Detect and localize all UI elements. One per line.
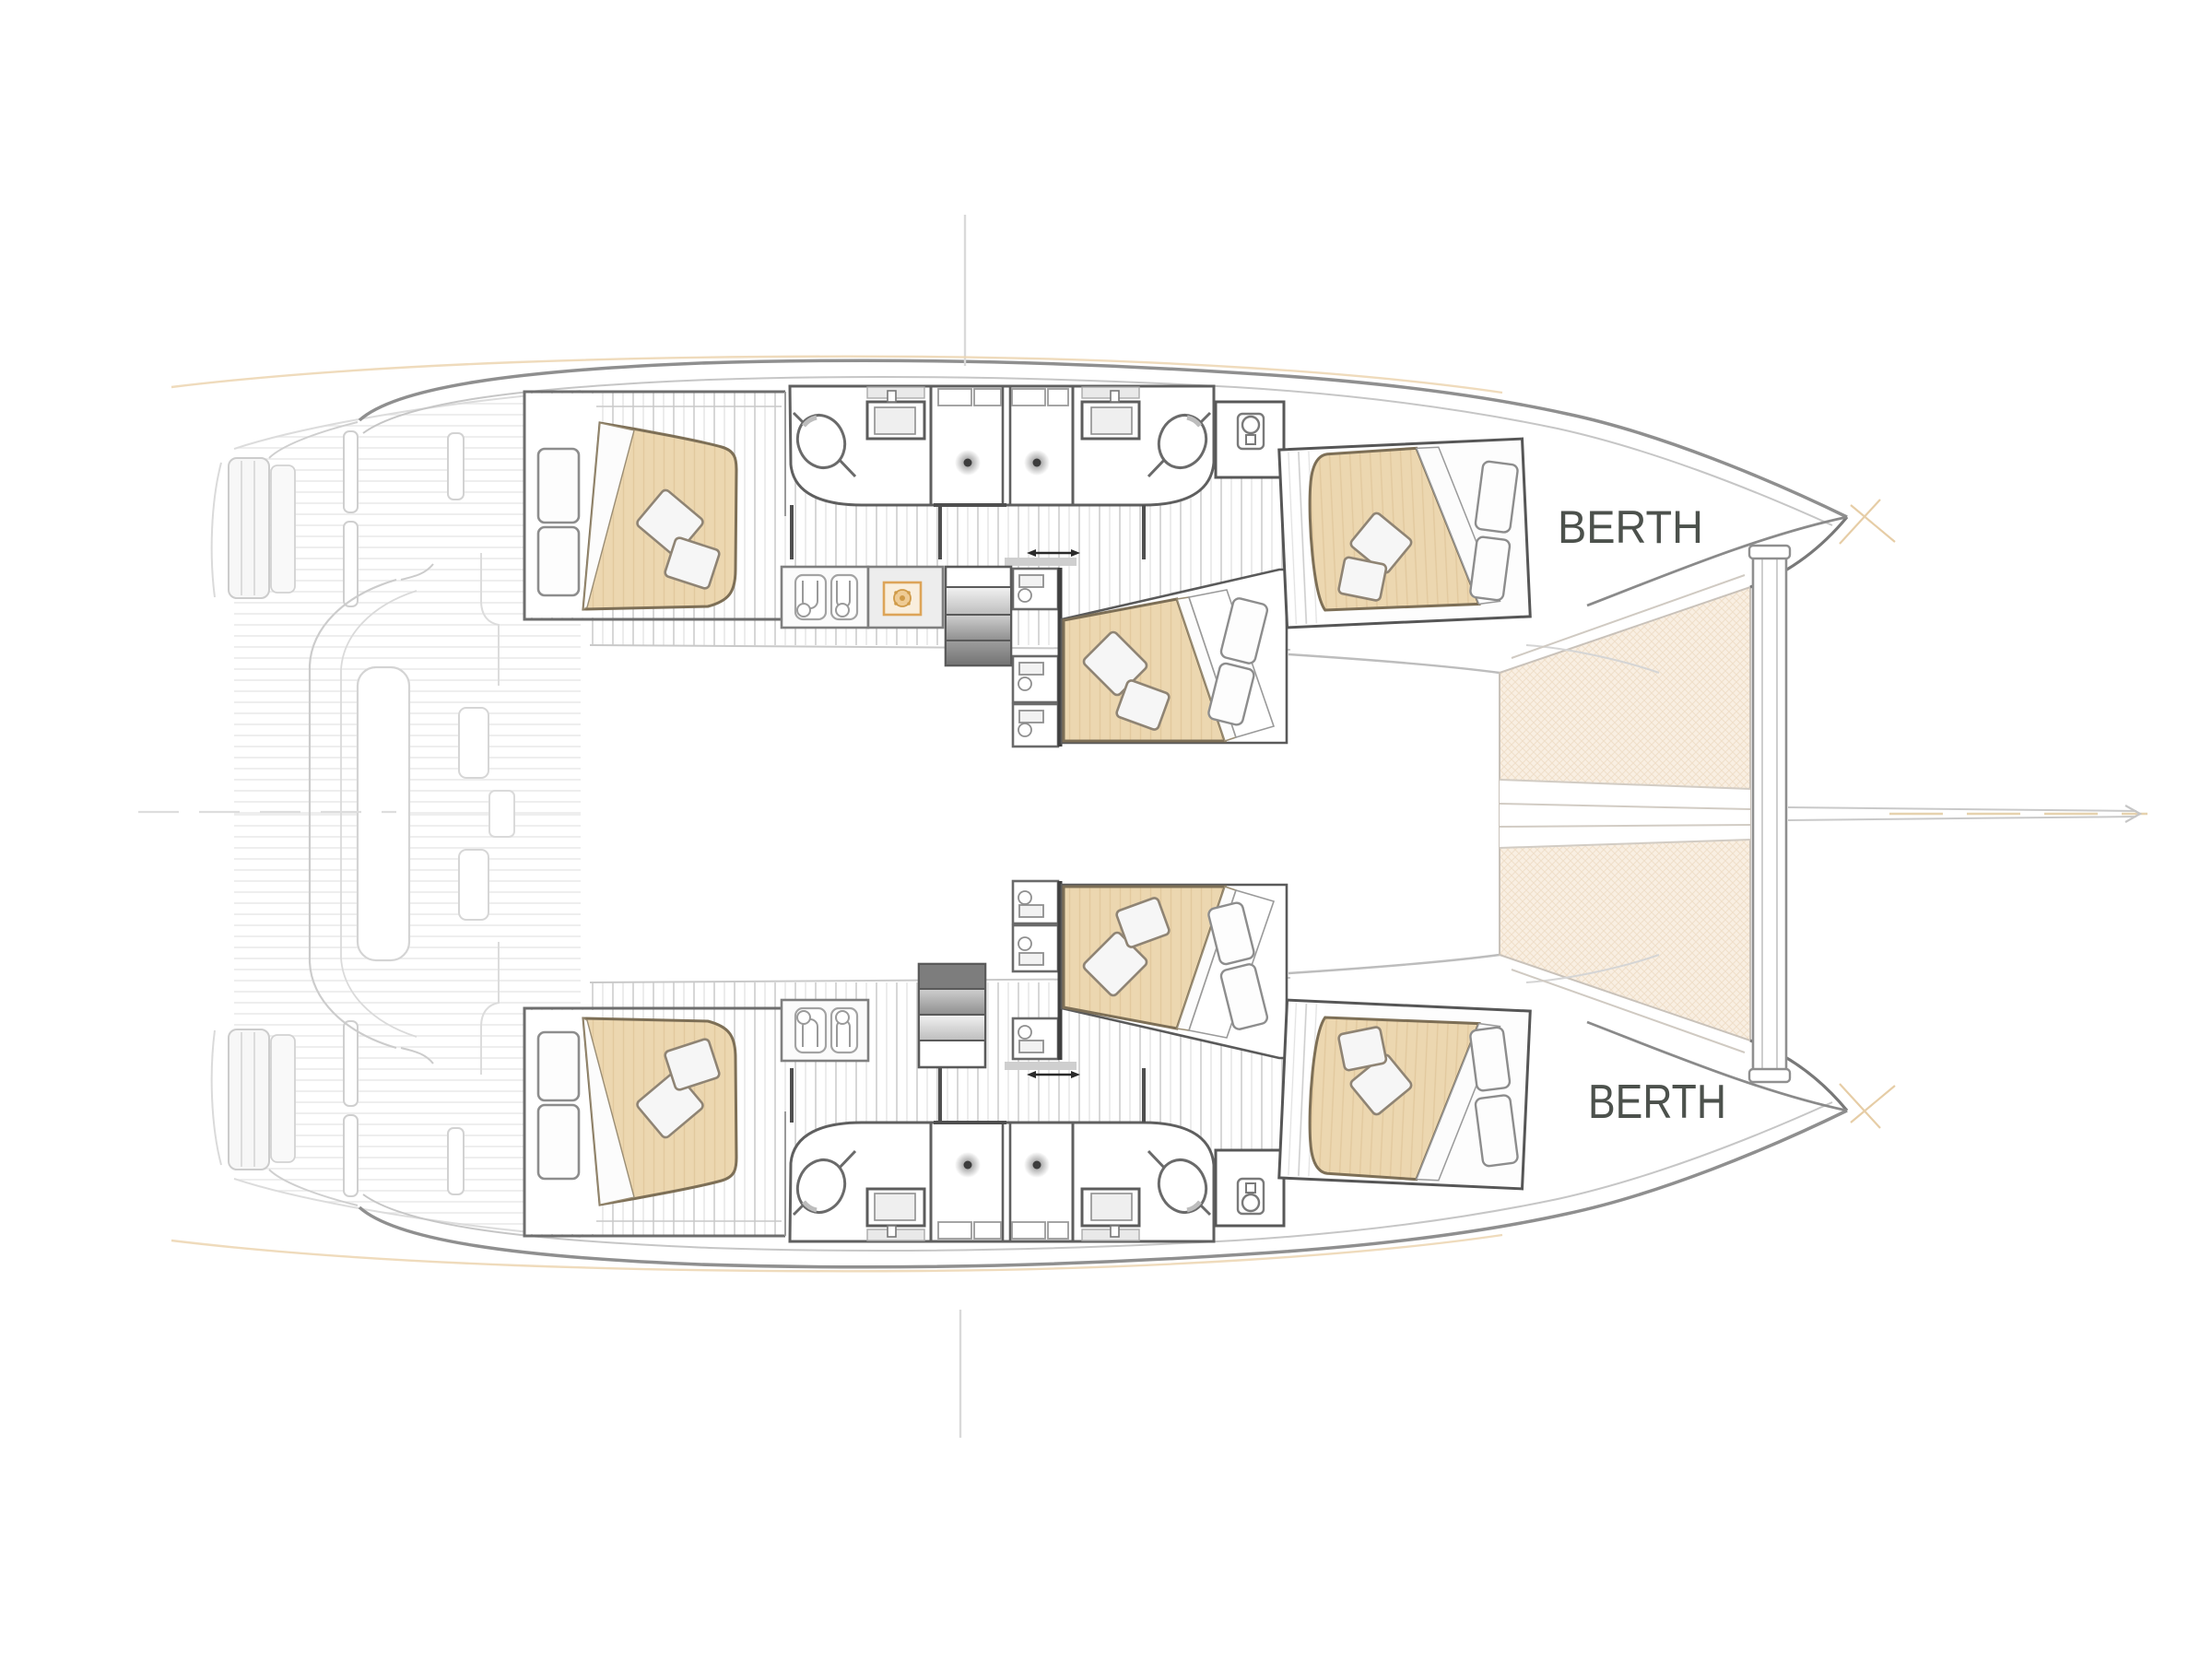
svg-text:BERTH: BERTH [1588,1076,1726,1129]
svg-text:BERTH: BERTH [1558,501,1703,553]
